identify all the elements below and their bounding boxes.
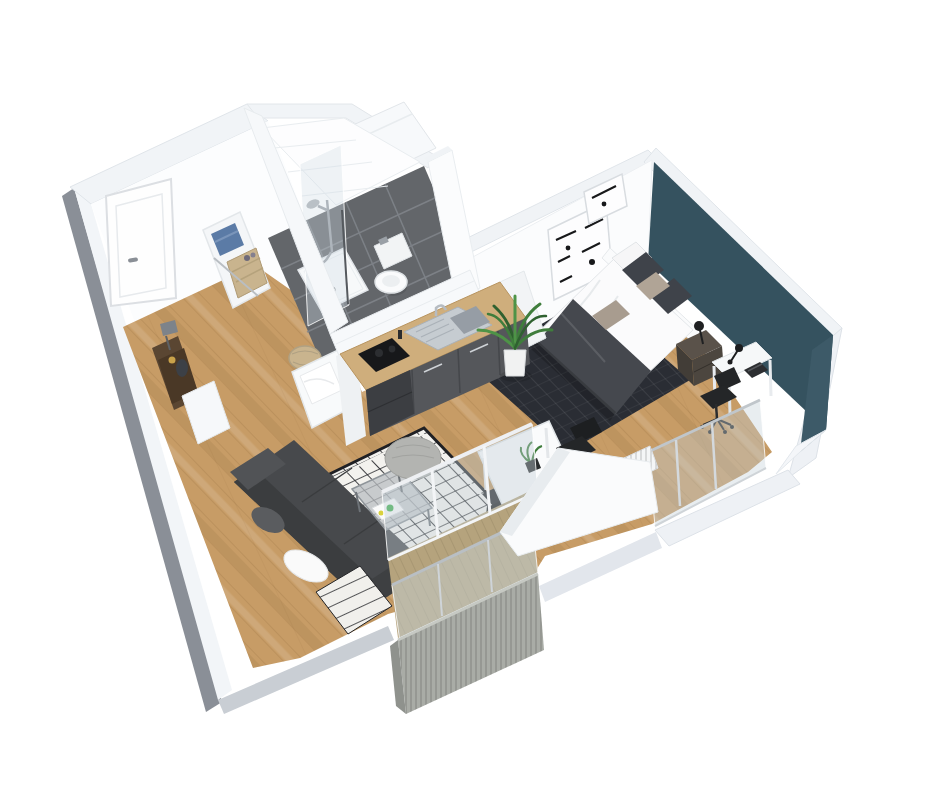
soap-bottle <box>398 330 402 339</box>
floorplan-3d-render <box>0 0 941 800</box>
plant-pot <box>504 350 526 376</box>
entrance-door <box>106 179 176 306</box>
decor-gold <box>169 357 176 364</box>
decor-vase <box>176 359 188 377</box>
floorplan-svg <box>0 0 941 800</box>
